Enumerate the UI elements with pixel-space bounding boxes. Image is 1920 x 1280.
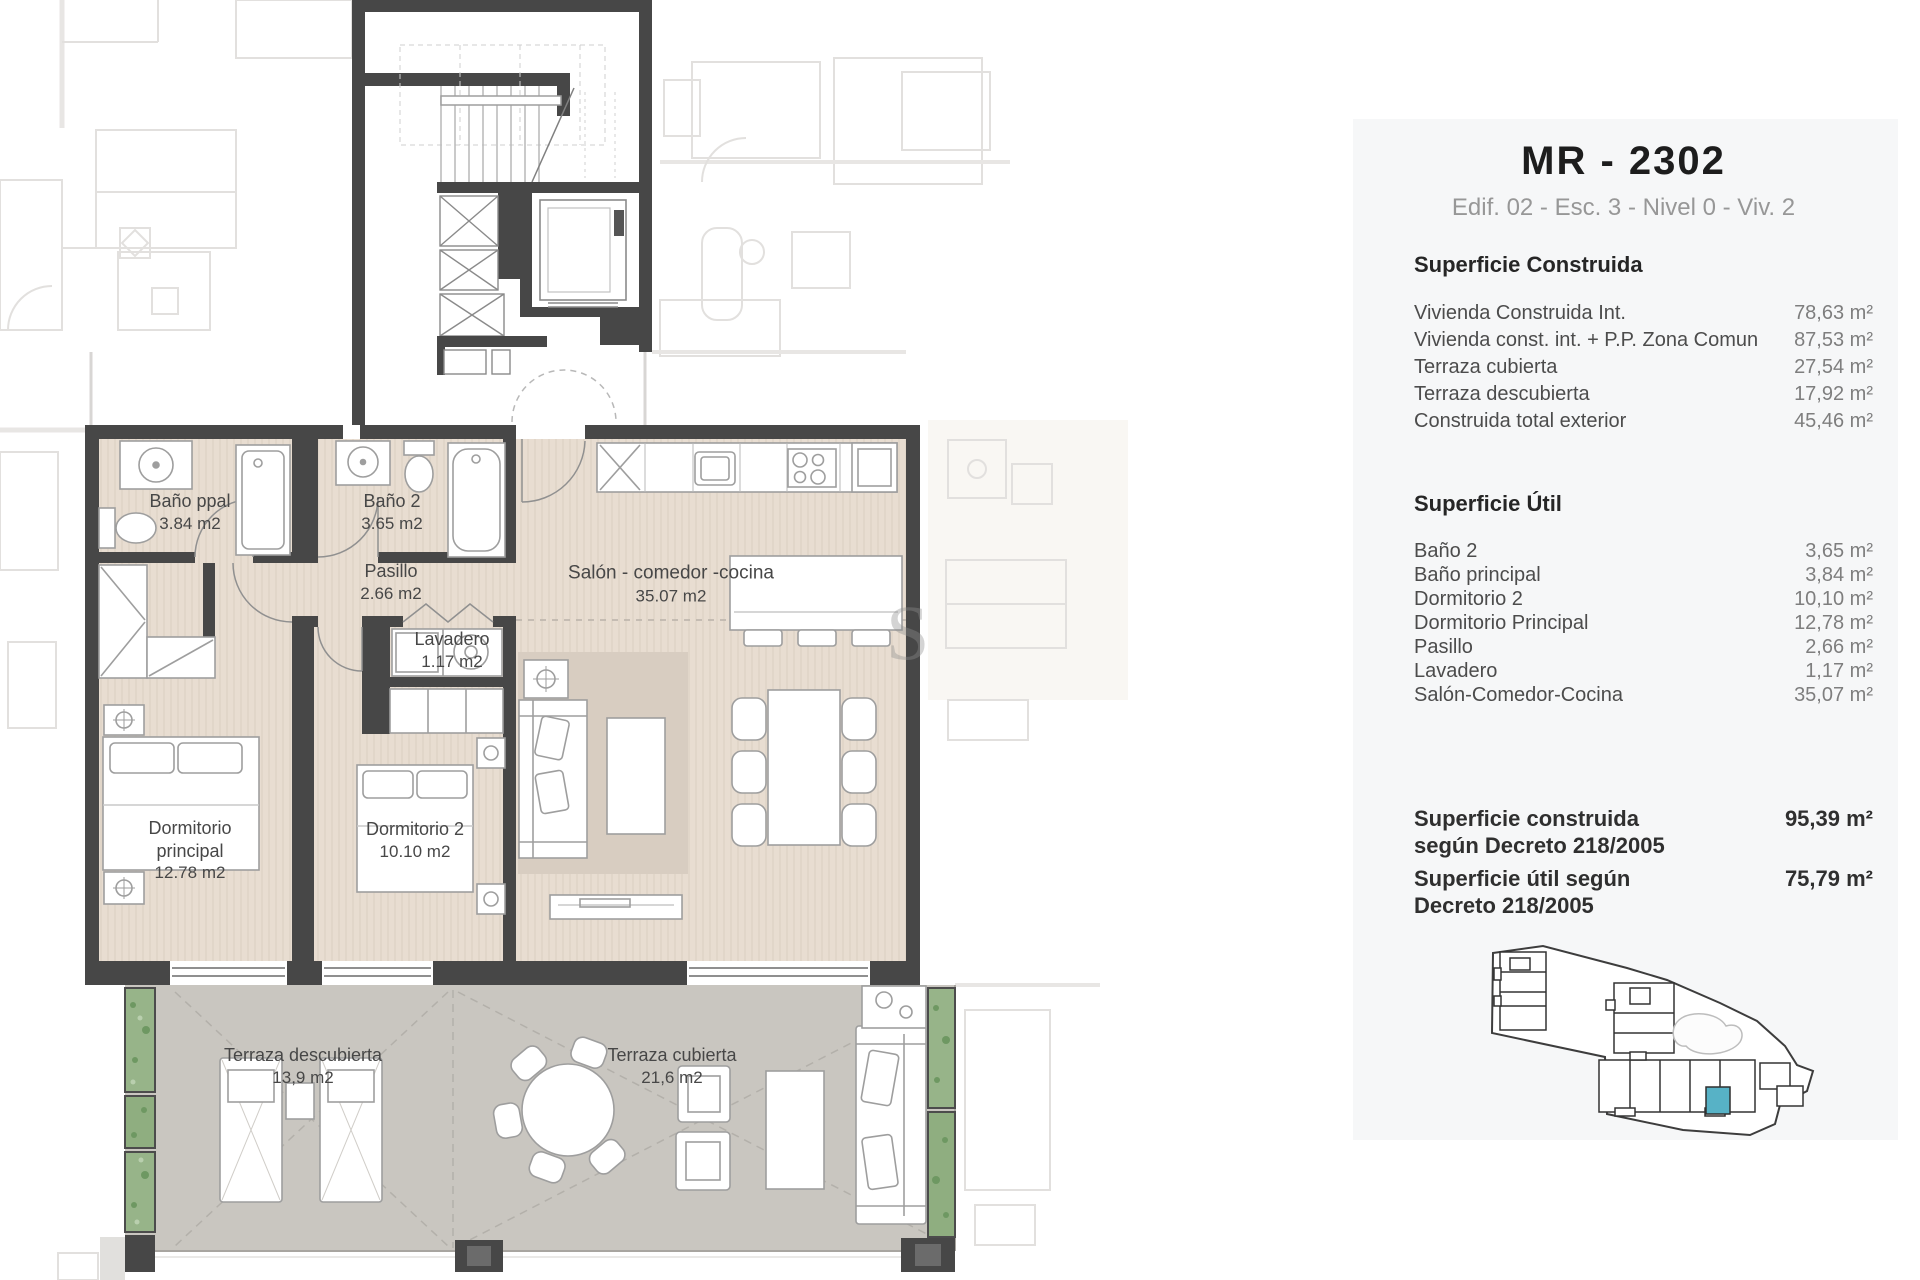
totals: Superficie construida según Decreto 218/… [1414, 805, 1873, 919]
terrace [125, 985, 955, 1272]
surface-row: Dormitorio 2 10,10 m² [1414, 587, 1873, 611]
room-label-terraza-descubierta: Terraza descubierta 13,9 m2 [224, 1044, 382, 1088]
site-plan [1480, 938, 1830, 1140]
surface-row: Vivienda Construida Int. 78,63 m² [1414, 300, 1873, 327]
room-label-salon: Salón - comedor -cocina 35.07 m2 [568, 562, 774, 607]
room-label-bano-ppal: Baño ppal 3.84 m2 [149, 490, 230, 534]
unit-subtitle: Edif. 02 - Esc. 3 - Nivel 0 - Viv. 2 [1414, 194, 1833, 222]
coffee-table [607, 718, 665, 834]
outdoor-sofa [856, 1026, 926, 1224]
kitchen-counter [597, 443, 897, 492]
dining-set [732, 690, 876, 846]
total-row: Superficie construida según Decreto 218/… [1414, 805, 1873, 859]
room-label-bano-2: Baño 2 3.65 m2 [361, 490, 422, 534]
room-label-pasillo: Pasillo 2.66 m2 [360, 560, 421, 604]
surface-row: Construida total exterior 45,46 m² [1414, 408, 1873, 435]
unit-title: MR - 2302 [1414, 139, 1833, 184]
surface-row: Baño 2 3,65 m² [1414, 539, 1873, 563]
utility-shafts [440, 193, 520, 336]
section-heading-construida: Superficie Construida [1414, 252, 1873, 278]
pillar [125, 1235, 155, 1272]
surface-row: Vivienda const. int. + P.P. Zona Comun 8… [1414, 327, 1873, 354]
pillar [455, 1240, 503, 1272]
surface-row: Lavadero 1,17 m² [1414, 659, 1873, 683]
floorplan-sheet: S Baño ppal 3.84 m2 Baño 2 3.65 m2 Pasil… [0, 0, 1920, 1280]
section-heading-util: Superficie Útil [1414, 491, 1873, 517]
room-label-lavadero: Lavadero 1.17 m2 [414, 628, 489, 672]
surface-row: Terraza descubierta 17,92 m² [1414, 381, 1873, 408]
room-label-dormitorio-principal: Dormitorio principal 12.78 m2 [148, 817, 231, 883]
elevator [520, 193, 652, 317]
stair-core [352, 0, 652, 425]
tv-bench [550, 895, 682, 919]
outdoor-coffee-table [766, 1071, 824, 1189]
fire-feature [524, 660, 568, 698]
surface-row: Dormitorio Principal 12,78 m² [1414, 611, 1873, 635]
highlighted-unit [1706, 1087, 1730, 1114]
construida-table: Vivienda Construida Int. 78,63 m² Vivien… [1414, 300, 1873, 435]
bbq-counter [862, 986, 926, 1028]
surface-row: Pasillo 2,66 m² [1414, 635, 1873, 659]
total-row: Superficie útil según Decreto 218/2005 7… [1414, 865, 1873, 919]
room-label-terraza-cubierta: Terraza cubierta 21,6 m2 [607, 1044, 736, 1088]
util-table: Baño 2 3,65 m² Baño principal 3,84 m² Do… [1414, 539, 1873, 707]
planter-left [125, 988, 155, 1232]
sofa [519, 700, 587, 858]
surface-row: Salón-Comedor-Cocina 35,07 m² [1414, 683, 1873, 707]
planter-right [928, 988, 955, 1237]
room-label-dormitorio-2: Dormitorio 2 10.10 m2 [366, 818, 464, 862]
surface-row: Terraza cubierta 27,54 m² [1414, 354, 1873, 381]
pillar [901, 1238, 955, 1272]
surface-row: Baño principal 3,84 m² [1414, 563, 1873, 587]
outdoor-armchair [676, 1132, 730, 1190]
side-table [286, 1083, 314, 1119]
